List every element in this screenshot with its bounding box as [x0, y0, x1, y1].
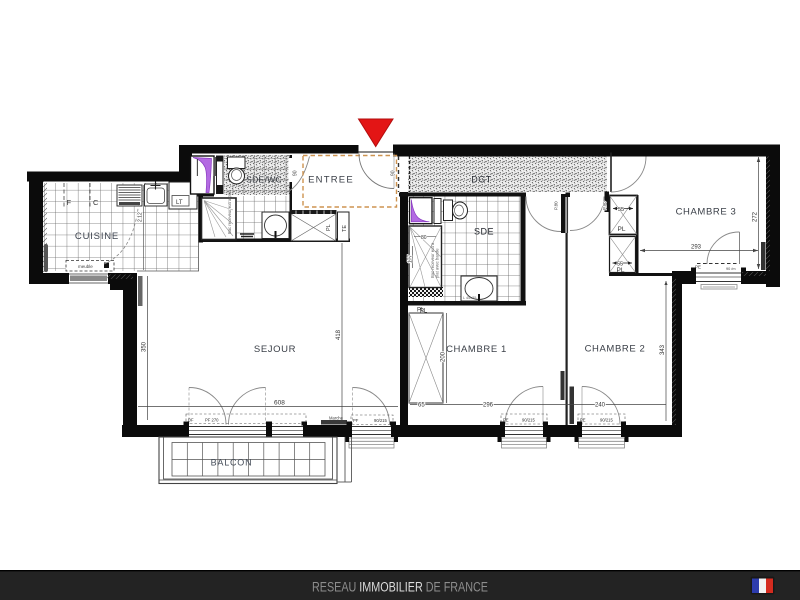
svg-text:meuble: meuble	[78, 264, 93, 269]
svg-text:CHAMBRE 1: CHAMBRE 1	[446, 344, 507, 355]
svg-text:418: 418	[336, 329, 342, 340]
svg-text:Bac receveur extra-plat: Bac receveur extra-plat	[227, 190, 232, 234]
svg-text:TE: TE	[342, 225, 348, 232]
svg-text:P.80: P.80	[554, 201, 559, 210]
svg-text:CHAMBRE 2: CHAMBRE 2	[585, 344, 646, 355]
svg-text:F: F	[67, 198, 72, 207]
svg-text:L 45x35: L 45x35	[463, 296, 476, 300]
svg-text:90: 90	[293, 170, 299, 176]
svg-text:293: 293	[691, 245, 702, 251]
svg-text:296: 296	[483, 403, 494, 409]
svg-text:90/215: 90/215	[522, 418, 535, 423]
svg-text:177: 177	[408, 254, 414, 263]
svg-text:BALCON: BALCON	[211, 458, 253, 468]
svg-text:plat avec bande: plat avec bande	[435, 248, 440, 278]
svg-text:PL: PL	[326, 224, 332, 231]
svg-text:90/215: 90/215	[374, 418, 387, 423]
svg-text:Marche: Marche	[329, 416, 344, 421]
svg-text:P.90: P.90	[602, 201, 607, 210]
svg-text:LT: LT	[176, 200, 183, 206]
svg-text:PF 270: PF 270	[205, 418, 219, 423]
svg-text:SDE/WC: SDE/WC	[246, 175, 282, 185]
svg-text:PF: PF	[353, 418, 359, 423]
svg-text:55: 55	[618, 207, 624, 213]
svg-text:90/215: 90/215	[600, 418, 613, 423]
svg-text:RESEAU IMMOBILIER DE FRANCE: RESEAU IMMOBILIER DE FRANCE	[312, 580, 488, 595]
svg-text:PL: PL	[617, 267, 625, 274]
svg-text:272: 272	[753, 211, 759, 222]
svg-text:PL: PL	[420, 309, 428, 315]
svg-text:PL: PL	[618, 226, 626, 233]
svg-text:CHAMBRE 3: CHAMBRE 3	[676, 207, 737, 218]
svg-text:608: 608	[274, 400, 285, 407]
svg-text:ENTREE: ENTREE	[308, 175, 354, 186]
svg-text:343: 343	[660, 344, 666, 355]
svg-text:CUISINE: CUISINE	[75, 231, 119, 242]
svg-text:DGT: DGT	[471, 175, 492, 185]
svg-text:240: 240	[595, 403, 606, 409]
svg-text:90: 90	[391, 170, 397, 176]
svg-text:SEJOUR: SEJOUR	[254, 344, 296, 355]
svg-text:90 /m: 90 /m	[726, 267, 736, 271]
svg-text:2.12: 2.12	[138, 212, 144, 222]
svg-text:SDE: SDE	[474, 227, 494, 237]
svg-text:C: C	[93, 198, 99, 207]
svg-text:350: 350	[142, 341, 148, 352]
svg-text:65: 65	[418, 403, 425, 409]
svg-text:80: 80	[421, 235, 427, 241]
